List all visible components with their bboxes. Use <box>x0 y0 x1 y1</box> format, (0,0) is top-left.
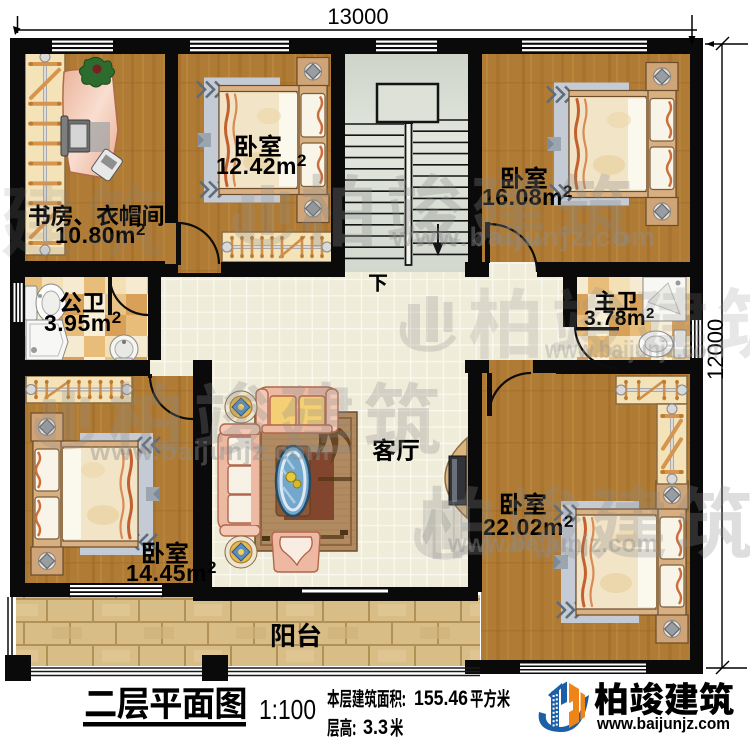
svg-text:www.baijunjz.com: www.baijunjz.com <box>544 336 725 364</box>
svg-text:13000: 13000 <box>327 4 388 29</box>
svg-text:3.3: 3.3 <box>363 716 388 739</box>
svg-text:14.45m2: 14.45m2 <box>126 558 217 586</box>
svg-text:www.baijunjz.com: www.baijunjz.com <box>596 714 730 733</box>
svg-text:3.95m2: 3.95m2 <box>44 308 122 336</box>
svg-text:www.baijunjz.com: www.baijunjz.com <box>391 222 657 252</box>
svg-text:1:100: 1:100 <box>259 694 316 725</box>
svg-text:www.baijunjz.com: www.baijunjz.com <box>89 436 330 466</box>
svg-text:155.46: 155.46 <box>414 687 468 710</box>
svg-text:www.baijunjz.com: www.baijunjz.com <box>447 530 658 558</box>
svg-text:12.42m2: 12.42m2 <box>216 151 307 179</box>
